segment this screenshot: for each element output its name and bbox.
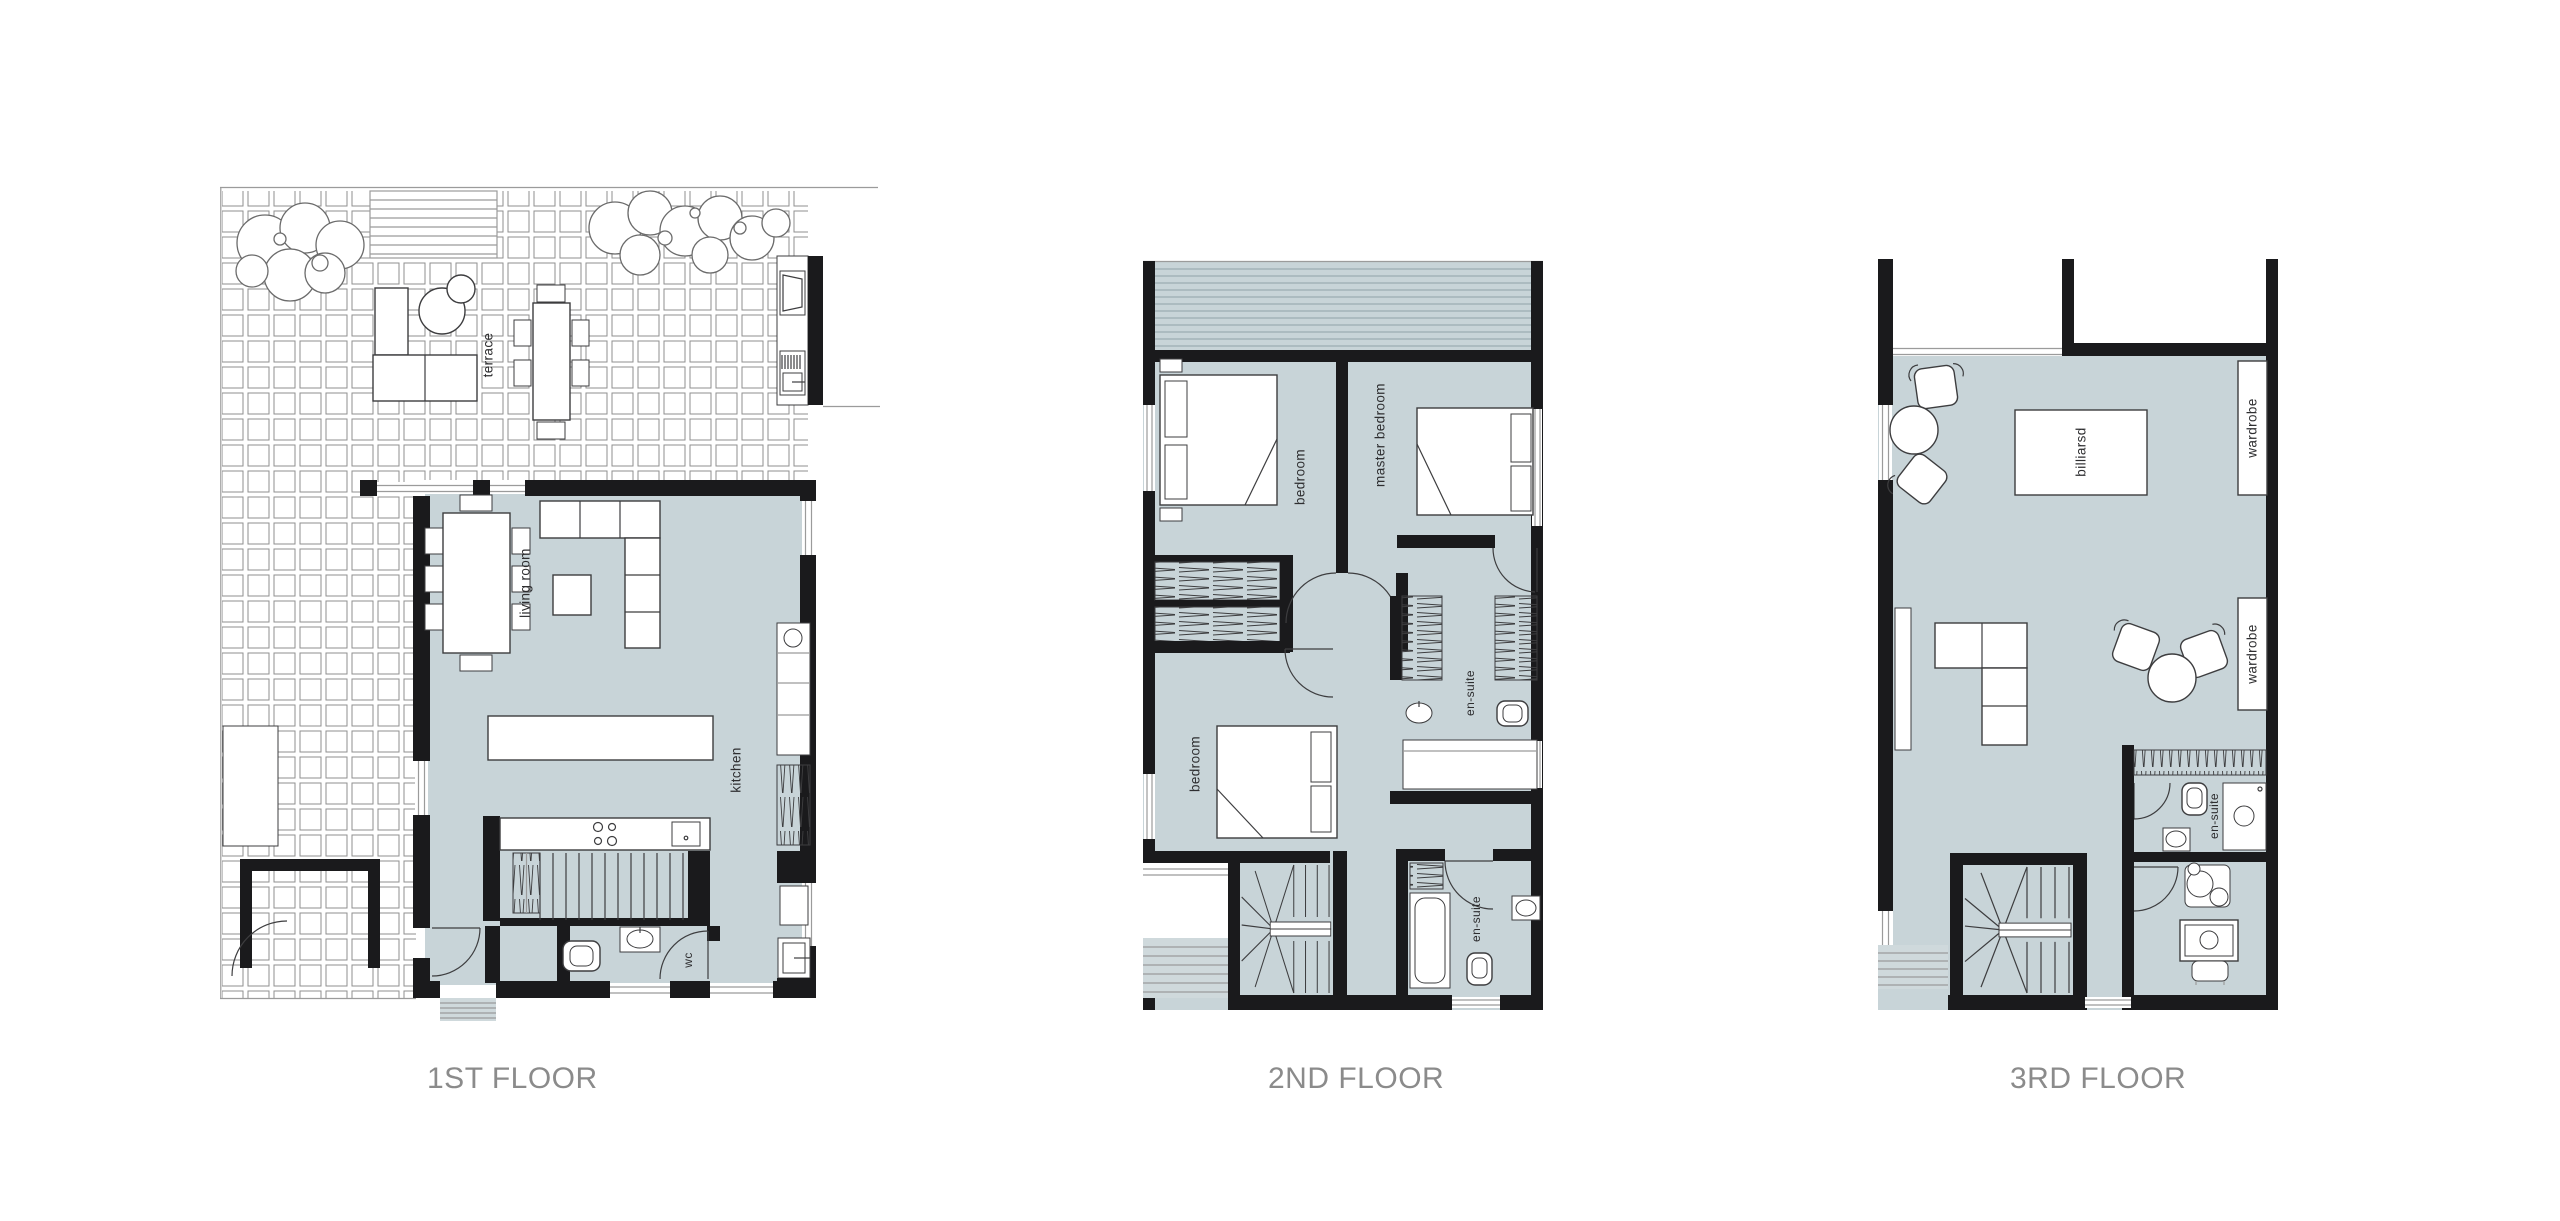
- top-deck-steps: [370, 191, 497, 258]
- kitchen-island: [488, 716, 713, 760]
- bed: [1417, 408, 1533, 515]
- room-label-master-bedroom: master bedroom: [1373, 383, 1388, 487]
- room-label-billiards: billiarsd: [2074, 427, 2089, 476]
- room-label-bedroom-2: bedroom: [1188, 736, 1203, 792]
- wardrobe-hatch: [1155, 555, 1293, 652]
- room-label-wardrobe-bottom: wardrobe: [2245, 624, 2260, 684]
- floor-plan-3: billiarsd wardrobe wardrobe en-s: [1878, 259, 2278, 1010]
- room-label-ensuite-top: en-suite: [1463, 670, 1477, 716]
- floor-title-3: 3RD FLOOR: [2010, 1062, 2186, 1096]
- floor-plan-2: bedroom master bedroom: [1143, 259, 1543, 1010]
- room-label-ensuite: en-suite: [2207, 793, 2221, 839]
- exterior-steps: [1143, 863, 1228, 998]
- bed: [1160, 359, 1277, 521]
- balcony-deck: [1143, 261, 1543, 356]
- floor-plans-page: { "page": { "background": "#ffffff" }, "…: [0, 0, 2560, 1221]
- room-label-terrace: terrace: [481, 333, 496, 378]
- bottom-wall: [1228, 995, 1543, 1010]
- kitchen-tall-units: [777, 623, 816, 998]
- floor-title-2: 2ND FLOOR: [1268, 1062, 1444, 1096]
- room-label-wc: wc: [681, 952, 695, 968]
- bottom-wall: [1948, 995, 2278, 1010]
- floor-plan-1: terrace: [220, 183, 880, 1023]
- floor-title-1: 1ST FLOOR: [427, 1062, 598, 1096]
- room-label-kitchen: kitchen: [729, 747, 744, 793]
- planter: [223, 726, 278, 846]
- room-label-bedroom: bedroom: [1293, 449, 1308, 505]
- room-label-ensuite-bottom: en-suite: [1469, 896, 1483, 942]
- shelf: [1895, 608, 1911, 750]
- entry-steps: [440, 998, 496, 1021]
- room-label-wardrobe-top: wardrobe: [2245, 398, 2260, 458]
- outdoor-kitchen: [777, 256, 823, 405]
- room-label-living-room: living room: [518, 548, 533, 618]
